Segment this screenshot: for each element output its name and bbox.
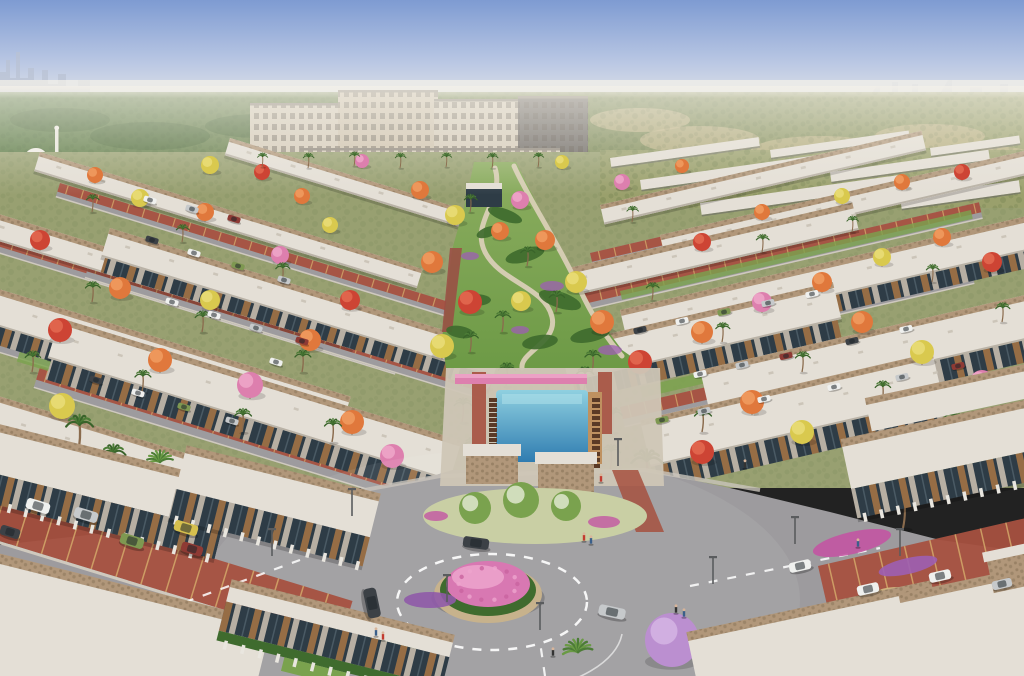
sun-lounger xyxy=(592,446,600,450)
tree-highlight xyxy=(853,312,865,324)
tree-highlight xyxy=(492,223,502,233)
flower-speck xyxy=(467,594,471,598)
palm-shadow xyxy=(200,332,208,335)
palm-shadow xyxy=(1000,322,1008,324)
person-body xyxy=(600,476,602,482)
tree-highlight xyxy=(255,165,264,174)
lamp-pole xyxy=(712,558,714,584)
tree-highlight xyxy=(342,291,353,302)
lamp-pole xyxy=(446,576,448,602)
sun-lounger xyxy=(489,413,497,417)
tree-highlight xyxy=(202,157,212,167)
flower-speck xyxy=(493,566,497,570)
tree-highlight xyxy=(556,156,564,164)
palm-shadow xyxy=(650,300,657,302)
palm-shadow xyxy=(90,212,97,214)
tree-highlight xyxy=(342,411,355,424)
tree-highlight xyxy=(537,231,548,242)
person-body xyxy=(675,607,677,613)
haze xyxy=(0,80,1024,195)
bed-tree-blossom xyxy=(554,494,569,509)
pavilion-roof xyxy=(463,444,521,456)
pavilion-stone xyxy=(538,460,594,492)
tree-highlight xyxy=(693,322,705,334)
sun-lounger xyxy=(592,440,600,444)
bed-purple xyxy=(588,516,620,528)
tree-highlight xyxy=(295,189,304,198)
sun-lounger xyxy=(592,398,600,402)
person-body xyxy=(552,650,554,656)
pavilion-roof xyxy=(535,452,597,464)
palm-shadow xyxy=(500,332,508,335)
palm-shadow xyxy=(444,167,450,169)
person-head xyxy=(857,538,860,541)
pool-pavilion xyxy=(463,444,521,484)
tree-highlight xyxy=(615,175,624,184)
park-flower-patch xyxy=(511,326,529,334)
sun-lounger xyxy=(489,403,497,407)
sun-lounger xyxy=(592,416,600,420)
car-roof xyxy=(470,538,482,547)
flower-speck xyxy=(504,594,508,598)
person-shadow xyxy=(598,482,603,484)
palm-shadow xyxy=(398,168,404,170)
flower-bed xyxy=(404,592,456,608)
person-head xyxy=(583,532,586,535)
sun-lounger xyxy=(592,404,600,408)
tree-highlight xyxy=(32,231,43,242)
palm-shadow xyxy=(300,372,309,375)
flower-speck xyxy=(512,575,516,579)
lilac-highlight xyxy=(651,618,678,645)
bed-tree-blossom xyxy=(462,495,478,511)
person-shadow xyxy=(581,541,586,543)
tree-highlight xyxy=(111,278,123,290)
person-body xyxy=(382,634,384,640)
person-head xyxy=(744,459,747,462)
palm-shadow xyxy=(239,432,248,435)
tree-highlight xyxy=(150,349,163,362)
tree-highlight xyxy=(835,189,844,198)
flower-speck xyxy=(515,582,519,586)
flower-speck xyxy=(480,566,484,570)
palm-shadow xyxy=(90,302,98,305)
palm-shadow xyxy=(720,342,728,344)
lamp-pole xyxy=(271,530,273,556)
lamp-head xyxy=(443,574,451,576)
sun-lounger xyxy=(489,428,497,432)
flower-speck xyxy=(459,589,463,593)
tree-highlight xyxy=(447,206,458,217)
palm-shadow xyxy=(536,167,542,169)
park-flower-patch xyxy=(598,345,622,355)
tree-highlight xyxy=(423,252,435,264)
sun-lounger xyxy=(489,398,497,402)
lamp-pole xyxy=(351,490,353,516)
lamp-head xyxy=(536,602,544,604)
tree-highlight xyxy=(792,421,805,434)
pool-courtyard xyxy=(423,368,664,544)
flower-speck xyxy=(459,575,463,579)
sun-lounger xyxy=(592,434,600,438)
sun-lounger xyxy=(489,433,497,437)
tree-highlight xyxy=(432,335,445,348)
person-shadow xyxy=(588,544,593,546)
tree-highlight xyxy=(692,441,705,454)
tree-highlight xyxy=(202,291,213,302)
person-shadow xyxy=(681,617,686,619)
tree-highlight xyxy=(197,204,207,214)
tree-highlight xyxy=(272,247,282,257)
flower-speck xyxy=(468,569,472,573)
tree-highlight xyxy=(88,168,97,177)
sun-lounger xyxy=(489,418,497,422)
palm-shadow xyxy=(329,442,338,445)
tree-highlight xyxy=(592,311,605,324)
palm-shadow xyxy=(930,282,937,284)
palm-shadow xyxy=(800,372,808,375)
palm-shadow xyxy=(468,212,475,214)
person-head xyxy=(375,627,378,630)
lamp-pole xyxy=(794,518,796,544)
lamp-pole xyxy=(899,530,901,556)
lamp-head xyxy=(791,516,799,518)
flower-speck xyxy=(479,597,483,601)
tree-highlight xyxy=(895,175,904,184)
tree-highlight xyxy=(50,319,63,332)
tree-highlight xyxy=(955,165,964,174)
person-body xyxy=(683,611,685,617)
tree-highlight xyxy=(567,272,579,284)
palm-shadow xyxy=(490,168,496,170)
sun-lounger xyxy=(592,422,600,426)
person-head xyxy=(683,608,686,611)
person-shadow xyxy=(373,636,378,638)
tree-highlight xyxy=(412,182,422,192)
pavilion-stone xyxy=(466,452,518,484)
person-body xyxy=(583,535,585,541)
palm-shadow xyxy=(352,166,358,168)
lamp-head xyxy=(896,528,904,530)
palm-shadow xyxy=(260,167,266,169)
tree-highlight xyxy=(912,341,925,354)
flower-speck xyxy=(456,582,460,586)
sun-lounger xyxy=(592,410,600,414)
sun-lounger xyxy=(489,423,497,427)
tree-highlight xyxy=(323,218,332,227)
tree-highlight xyxy=(239,374,253,388)
person-shadow xyxy=(673,613,678,615)
lamp-head xyxy=(614,438,622,440)
person-head xyxy=(590,535,593,538)
lamp-head xyxy=(348,488,356,490)
person-shadow xyxy=(550,656,555,658)
person-head xyxy=(675,604,678,607)
tree-highlight xyxy=(51,395,65,409)
person-shadow xyxy=(742,468,747,470)
aerial-render xyxy=(0,0,1024,676)
lamp-pole xyxy=(617,440,619,466)
tree-highlight xyxy=(512,192,522,202)
tree-highlight xyxy=(460,291,473,304)
person-body xyxy=(375,630,377,636)
bed-tree-blossom xyxy=(507,486,525,504)
lamp-pole xyxy=(539,604,541,630)
palm-shadow xyxy=(850,232,856,234)
person-body xyxy=(857,541,859,547)
park-flower-patch xyxy=(540,281,564,291)
palm-shadow xyxy=(30,372,38,375)
tree-highlight xyxy=(694,234,704,244)
person-shadow xyxy=(855,547,860,549)
flower-speck xyxy=(492,598,496,602)
tree-highlight xyxy=(630,351,643,364)
flower-speck xyxy=(504,569,508,573)
pool-shallow xyxy=(502,394,582,404)
park-flower-patch xyxy=(461,252,479,260)
person-body xyxy=(744,462,746,468)
person-shadow xyxy=(380,640,385,642)
person-head xyxy=(382,631,385,634)
palm-shadow xyxy=(699,432,708,435)
sun-lounger xyxy=(489,408,497,412)
tree-highlight xyxy=(132,190,142,200)
bed-purple xyxy=(424,511,448,521)
sun-lounger xyxy=(592,428,600,432)
tree-highlight xyxy=(382,445,395,458)
lamp-head xyxy=(709,556,717,558)
tree-highlight xyxy=(755,205,764,214)
palm-shadow xyxy=(180,242,187,244)
tree-highlight xyxy=(874,249,884,259)
lamp-head xyxy=(268,528,276,530)
palm-shadow xyxy=(468,352,476,355)
palm-shadow xyxy=(760,252,767,254)
atmospheric-haze xyxy=(0,80,1024,195)
flower-speck xyxy=(512,589,516,593)
pool-pavilion xyxy=(535,452,597,492)
tree-highlight xyxy=(676,160,684,168)
person-head xyxy=(600,473,603,476)
palm-shadow xyxy=(306,168,312,170)
tree-highlight xyxy=(814,273,825,284)
palm-shadow xyxy=(525,266,533,268)
palm-shadow xyxy=(630,222,636,224)
tree-highlight xyxy=(513,292,524,303)
sun-lounger xyxy=(489,438,497,442)
community-aerial-scene xyxy=(0,0,1024,676)
person-body xyxy=(590,538,592,544)
tree-highlight xyxy=(934,229,944,239)
tree-highlight xyxy=(742,391,755,404)
tree-highlight xyxy=(984,253,995,264)
palm-shadow xyxy=(554,312,562,315)
person-head xyxy=(552,647,555,650)
